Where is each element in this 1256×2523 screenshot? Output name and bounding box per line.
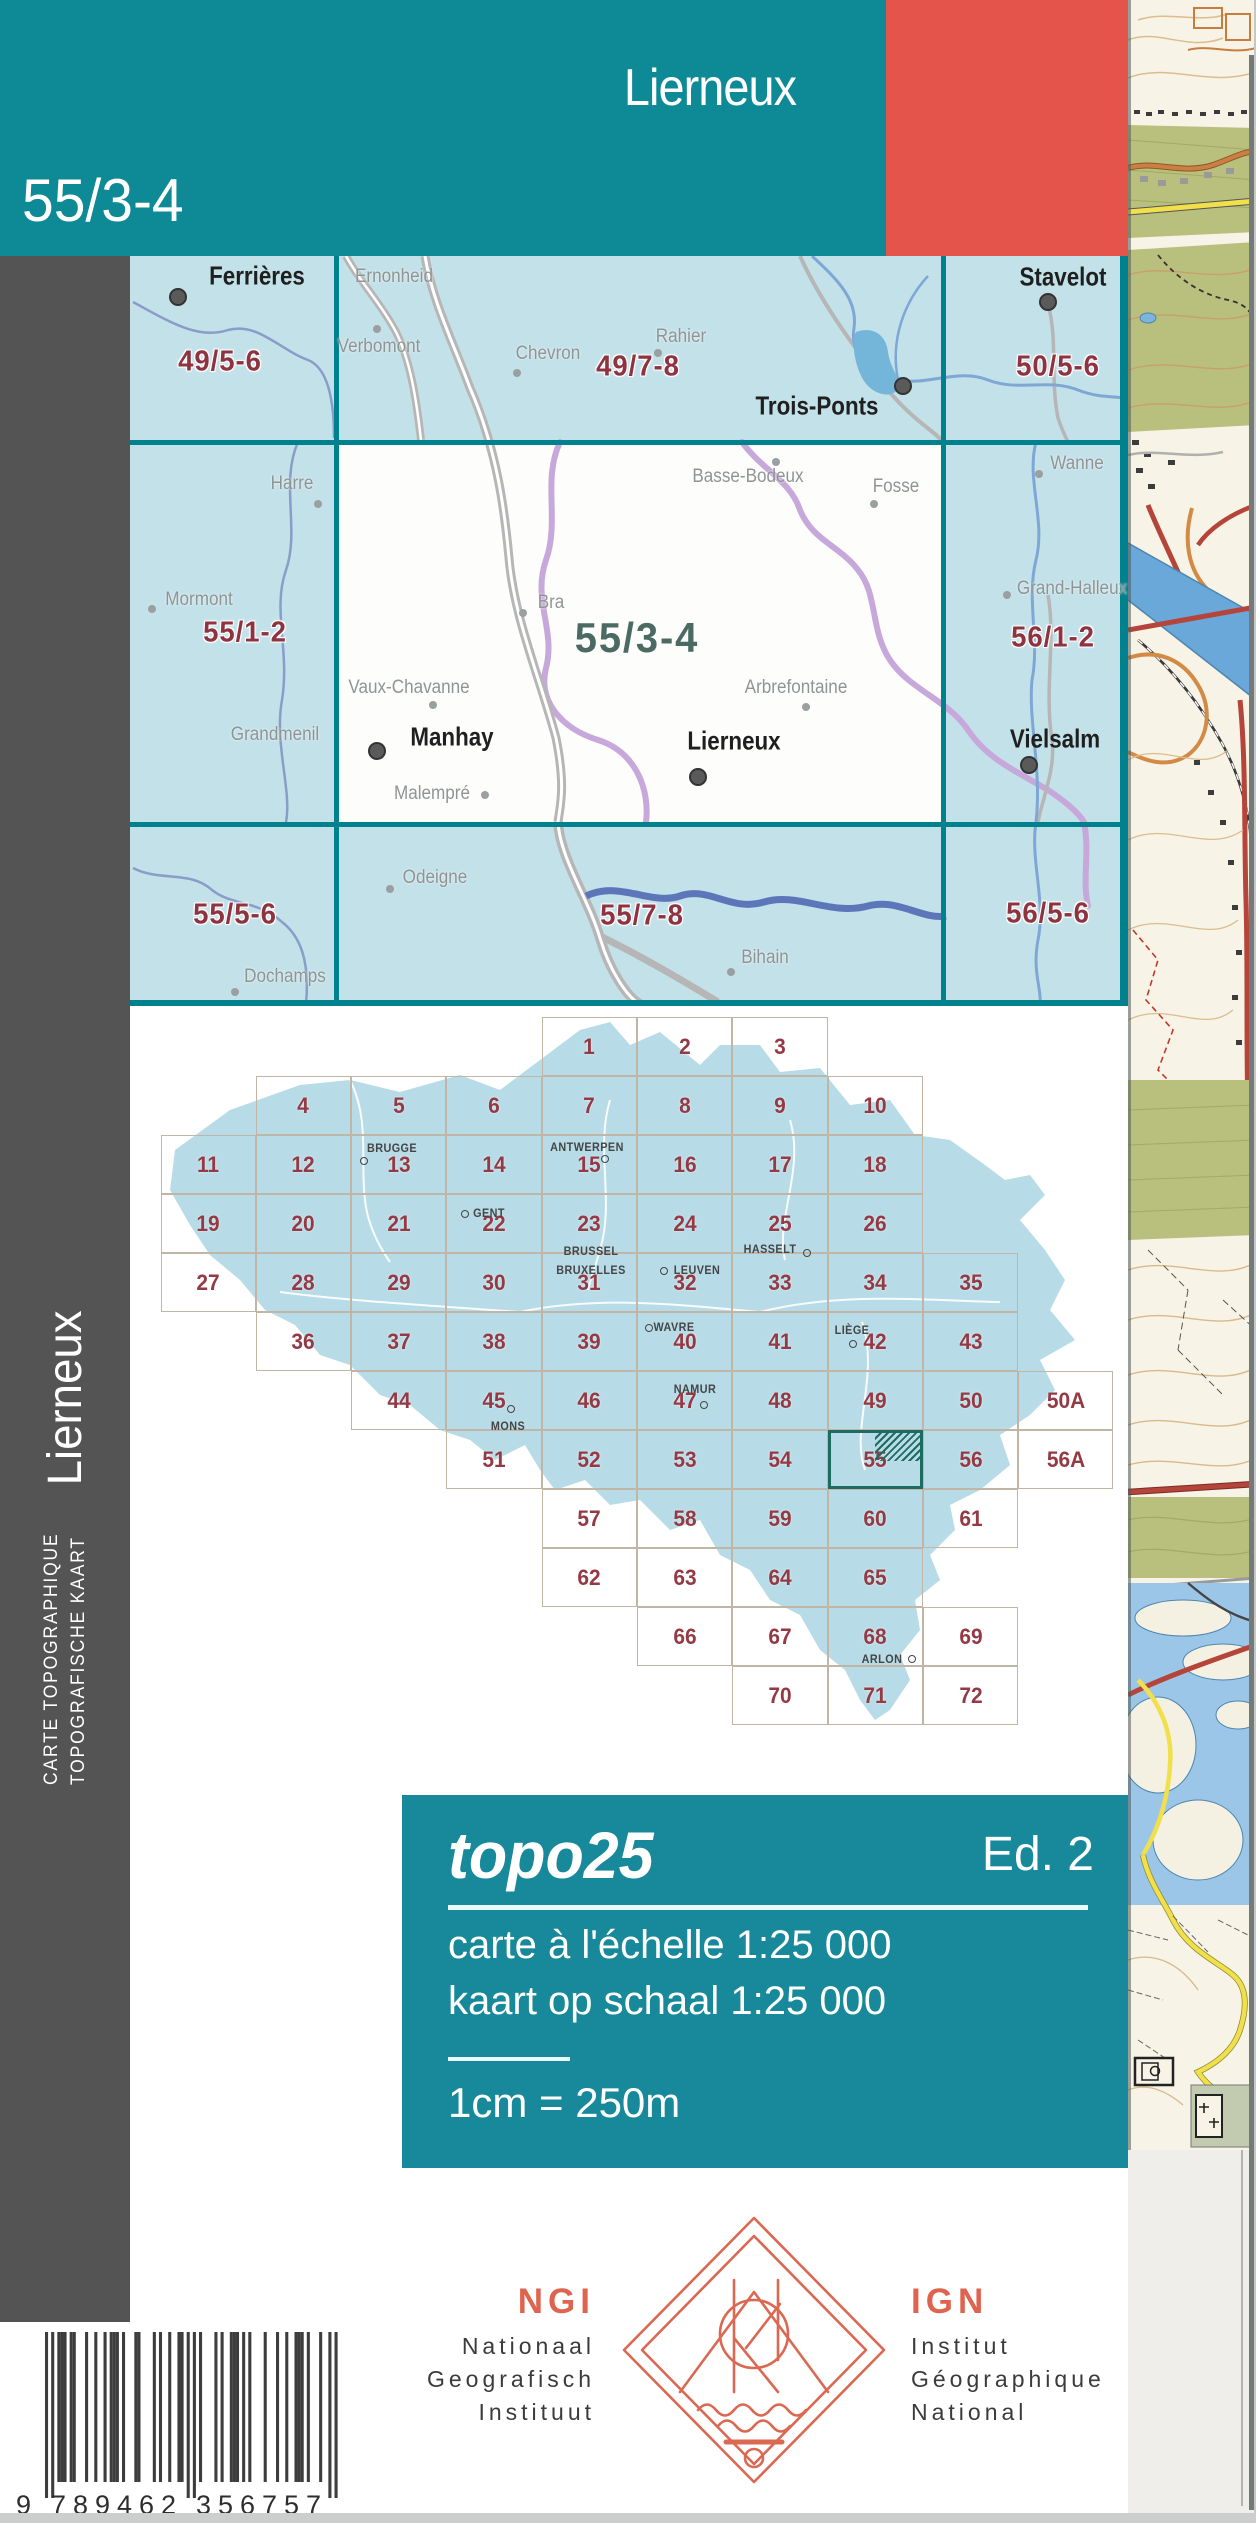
map-cover-page: Lierneux 55/3-4 CARTE TOPOGRAPHIQUE TOPO… (0, 0, 1256, 2523)
ign-line3: National (911, 2396, 1151, 2429)
sheet-cell-number: 44 (387, 1388, 410, 1414)
scan-bottom-edge (0, 2513, 1256, 2523)
ign-abbr: IGN (911, 2282, 1151, 2322)
sheet-cell-50A: 50A (1018, 1371, 1113, 1430)
sheet-cell-number: 53 (673, 1447, 696, 1473)
ngi-abbr: NGI (375, 2282, 595, 2322)
sheet-cell-number: 58 (673, 1506, 696, 1532)
sheet-cell-61: 61 (923, 1489, 1018, 1548)
spine-subtitle-nl: TOPOGRAFISCHE KAART (65, 1533, 92, 1786)
sheet-cell-57: 57 (542, 1489, 637, 1548)
sheet-cell-number: 48 (768, 1388, 791, 1414)
sheet-cell-number: 23 (578, 1211, 601, 1237)
sheet-cell-69: 69 (923, 1607, 1018, 1666)
sheet-cell-39: 39 (542, 1312, 637, 1371)
sheet-cell-26: 26 (828, 1194, 923, 1253)
sheet-cell-52: 52 (542, 1430, 637, 1489)
sheet-cell-number: 5 (393, 1093, 405, 1119)
sheet-cell-66: 66 (637, 1607, 732, 1666)
ean-barcode: 9789462356757 (8, 2328, 348, 2520)
sheet-cell-number: 29 (387, 1270, 410, 1296)
sheet-cell-50: 50 (923, 1371, 1018, 1430)
sheet-cell-68: 68 (828, 1607, 923, 1666)
sheet-cell-number: 3 (774, 1034, 786, 1060)
sheet-cell-number: 54 (768, 1447, 791, 1473)
sheet-cell-number: 61 (959, 1506, 982, 1532)
sheet-cell-number: 63 (673, 1565, 696, 1591)
sheet-cell-12: 12 (256, 1135, 351, 1194)
sheet-cell-number: 66 (673, 1624, 696, 1650)
sheet-cell-number: 11 (197, 1152, 219, 1178)
sheet-cell-49: 49 (828, 1371, 923, 1430)
sheet-cell-number: 25 (768, 1211, 791, 1237)
folded-map-strip (1128, 0, 1256, 2523)
sheet-cell-number: 16 (673, 1152, 696, 1178)
sheet-cell-number: 49 (864, 1388, 887, 1414)
index-grid-line-h1 (130, 440, 1128, 445)
sheet-cell-32: 32 (637, 1253, 732, 1312)
ngi-ign-logo-icon (614, 2208, 894, 2492)
sheet-cell-number: 51 (482, 1447, 505, 1473)
sheet-cell-number: 47 (673, 1388, 696, 1414)
sheet-cell-number: 7 (584, 1093, 596, 1119)
sheet-cell-number: 60 (864, 1506, 887, 1532)
sheet-cell-1: 1 (542, 1017, 637, 1076)
index-grid-line-h2 (130, 822, 1128, 827)
sheet-cell-number: 50A (1047, 1388, 1085, 1414)
sheet-cell-number: 57 (578, 1506, 601, 1532)
sheet-cell-37: 37 (351, 1312, 446, 1371)
ngi-line3: Instituut (375, 2396, 595, 2429)
sheet-cell-number: 45 (482, 1388, 505, 1414)
sheet-cell-number: 40 (673, 1329, 696, 1355)
sheet-cell-36: 36 (256, 1312, 351, 1371)
sheet-cell-number: 17 (768, 1152, 791, 1178)
index-grid-line-v3 (1120, 256, 1128, 1006)
sheet-cell-56A: 56A (1018, 1430, 1113, 1489)
sheet-cell-number: 69 (959, 1624, 982, 1650)
sheet-cell-number: 36 (292, 1329, 315, 1355)
sheet-cell-6: 6 (446, 1076, 541, 1135)
sheet-cell-4: 4 (256, 1076, 351, 1135)
sheet-cell-28: 28 (256, 1253, 351, 1312)
index-grid-line-v2 (941, 256, 946, 1006)
scale-text-nl: kaart op schaal 1:25 000 (448, 1979, 886, 2024)
highlighted-quadrant-hatch (875, 1433, 920, 1461)
sheet-cell-number: 20 (292, 1211, 315, 1237)
sheet-cell-51: 51 (446, 1430, 541, 1489)
sheet-cell-34: 34 (828, 1253, 923, 1312)
sheet-cell-number: 39 (578, 1329, 601, 1355)
red-corner-block (886, 0, 1128, 256)
sheet-cell-33: 33 (732, 1253, 827, 1312)
sheet-cell-number: 24 (673, 1211, 696, 1237)
sheet-cell-number: 1 (584, 1034, 596, 1060)
sheet-number: 55/3-4 (22, 166, 184, 235)
ngi-line2: Geografisch (375, 2363, 595, 2396)
sheet-cell-number: 56 (959, 1447, 982, 1473)
sheet-cell-number: 42 (864, 1329, 887, 1355)
sheet-cell-65: 65 (828, 1548, 923, 1607)
sheet-cell-number: 10 (864, 1093, 887, 1119)
ign-line1: Institut (911, 2330, 1151, 2363)
series-name: topo25 (448, 1817, 654, 1893)
sheet-cell-63: 63 (637, 1548, 732, 1607)
sheet-cell-25: 25 (732, 1194, 827, 1253)
sheet-cell-43: 43 (923, 1312, 1018, 1371)
sheet-cell-22: 22 (446, 1194, 541, 1253)
sheet-cell-40: 40 (637, 1312, 732, 1371)
sheet-cell-42: 42 (828, 1312, 923, 1371)
sheet-cell-18: 18 (828, 1135, 923, 1194)
sheet-cell-number: 8 (679, 1093, 691, 1119)
sheet-cell-number: 27 (197, 1270, 220, 1296)
sheet-cell-number: 21 (387, 1211, 410, 1237)
sheet-cell-71: 71 (828, 1666, 923, 1725)
sheet-cell-64: 64 (732, 1548, 827, 1607)
ign-line2: Géographique (911, 2363, 1151, 2396)
sheet-cell-number: 56A (1047, 1447, 1085, 1473)
sheet-cell-number: 15 (578, 1152, 601, 1178)
sheet-cell-53: 53 (637, 1430, 732, 1489)
sheet-cell-45: 45 (446, 1371, 541, 1430)
sheet-cell-number: 43 (959, 1329, 982, 1355)
scale-equivalence: 1cm = 250m (448, 2079, 680, 2127)
sheet-cell-number: 4 (298, 1093, 310, 1119)
sheet-cell-60: 60 (828, 1489, 923, 1548)
sheet-cell-number: 14 (482, 1152, 505, 1178)
sheet-cell-number: 12 (292, 1152, 315, 1178)
sheet-cell-number: 72 (959, 1683, 982, 1709)
sheet-cell-number: 31 (578, 1270, 601, 1296)
sheet-cell-38: 38 (446, 1312, 541, 1371)
sheet-cell-5: 5 (351, 1076, 446, 1135)
sheet-cell-number: 37 (387, 1329, 410, 1355)
sheet-cell-27: 27 (161, 1253, 256, 1312)
sheet-cell-21: 21 (351, 1194, 446, 1253)
sheet-cell-67: 67 (732, 1607, 827, 1666)
sheet-cell-9: 9 (732, 1076, 827, 1135)
sheet-cell-number: 19 (197, 1211, 220, 1237)
sheet-cell-72: 72 (923, 1666, 1018, 1725)
sheet-cell-number: 34 (864, 1270, 887, 1296)
spine-subtitle-fr: CARTE TOPOGRAPHIQUE (38, 1533, 65, 1786)
sheet-cell-20: 20 (256, 1194, 351, 1253)
sheet-cell-7: 7 (542, 1076, 637, 1135)
sheet-cell-23: 23 (542, 1194, 637, 1253)
sheet-cell-48: 48 (732, 1371, 827, 1430)
sheet-cell-10: 10 (828, 1076, 923, 1135)
sheet-cell-number: 68 (864, 1624, 887, 1650)
sheet-cell-number: 46 (578, 1388, 601, 1414)
scale-text-fr: carte à l'échelle 1:25 000 (448, 1923, 892, 1968)
sheet-cell-3: 3 (732, 1017, 827, 1076)
sheet-cell-59: 59 (732, 1489, 827, 1548)
sheet-cell-35: 35 (923, 1253, 1018, 1312)
sheet-cell-30: 30 (446, 1253, 541, 1312)
sheet-cell-number: 70 (768, 1683, 791, 1709)
sheet-cell-56: 56 (923, 1430, 1018, 1489)
ngi-line1: Nationaal (375, 2330, 595, 2363)
sheet-cell-55: 55 (828, 1430, 923, 1489)
series-info-block: topo25 Ed. 2 carte à l'échelle 1:25 000 … (402, 1795, 1128, 2168)
sheet-cell-62: 62 (542, 1548, 637, 1607)
sheet-cell-number: 71 (864, 1683, 887, 1709)
sheet-cell-54: 54 (732, 1430, 827, 1489)
sheet-cell-number: 32 (673, 1270, 696, 1296)
sheet-cell-number: 65 (864, 1565, 887, 1591)
sheet-cell-number: 22 (482, 1211, 505, 1237)
spine-text: CARTE TOPOGRAPHIQUE TOPOGRAFISCHE KAART … (20, 1351, 110, 1751)
sheet-cell-17: 17 (732, 1135, 827, 1194)
map-title: Lierneux (624, 58, 796, 118)
sheet-cell-number: 59 (768, 1506, 791, 1532)
sheet-cell-number: 2 (679, 1034, 691, 1060)
sheet-cell-47: 47 (637, 1371, 732, 1430)
sheet-cell-29: 29 (351, 1253, 446, 1312)
spine-title: Lierneux (38, 1310, 93, 1485)
sheet-cell-number: 18 (864, 1152, 887, 1178)
sheet-cell-13: 13 (351, 1135, 446, 1194)
sheet-cell-number: 6 (488, 1093, 500, 1119)
sheet-cell-number: 9 (774, 1093, 786, 1119)
sheet-cell-number: 38 (482, 1329, 505, 1355)
publisher-fr: IGN Institut Géographique National (911, 2282, 1151, 2429)
sheet-cell-31: 31 (542, 1253, 637, 1312)
sheet-cell-19: 19 (161, 1194, 256, 1253)
sheet-cell-41: 41 (732, 1312, 827, 1371)
sheet-cell-number: 35 (959, 1270, 982, 1296)
sheet-cell-number: 30 (482, 1270, 505, 1296)
edition-label: Ed. 2 (982, 1827, 1094, 1882)
sheet-cell-46: 46 (542, 1371, 637, 1430)
index-grid-line-v1 (334, 256, 339, 1006)
sheet-cell-70: 70 (732, 1666, 827, 1725)
scale-divider (448, 2057, 570, 2061)
sheet-cell-15: 15 (542, 1135, 637, 1194)
sheet-cell-24: 24 (637, 1194, 732, 1253)
sheet-cell-number: 26 (864, 1211, 887, 1237)
sheet-cell-number: 28 (292, 1270, 315, 1296)
sheet-cell-number: 50 (959, 1388, 982, 1414)
sheet-cell-number: 62 (578, 1565, 601, 1591)
sheet-cell-number: 64 (768, 1565, 791, 1591)
sheet-cell-8: 8 (637, 1076, 732, 1135)
spine-sidebar: CARTE TOPOGRAPHIQUE TOPOGRAFISCHE KAART … (0, 256, 130, 2322)
sheet-cell-number: 41 (768, 1329, 791, 1355)
sheet-cell-number: 67 (768, 1624, 791, 1650)
sheet-cell-44: 44 (351, 1371, 446, 1430)
sheet-cell-14: 14 (446, 1135, 541, 1194)
sheet-cell-number: 13 (387, 1152, 410, 1178)
sheet-cell-number: 52 (578, 1447, 601, 1473)
spine-subtitle: CARTE TOPOGRAPHIQUE TOPOGRAFISCHE KAART (38, 1533, 92, 1786)
sheet-cell-58: 58 (637, 1489, 732, 1548)
sheet-cell-number: 33 (768, 1270, 791, 1296)
publisher-nl: NGI Nationaal Geografisch Instituut (375, 2282, 595, 2429)
sheet-cell-11: 11 (161, 1135, 256, 1194)
sheet-cell-2: 2 (637, 1017, 732, 1076)
index-map-features (130, 256, 1128, 1006)
info-divider (448, 1905, 1088, 1910)
sheet-cell-16: 16 (637, 1135, 732, 1194)
